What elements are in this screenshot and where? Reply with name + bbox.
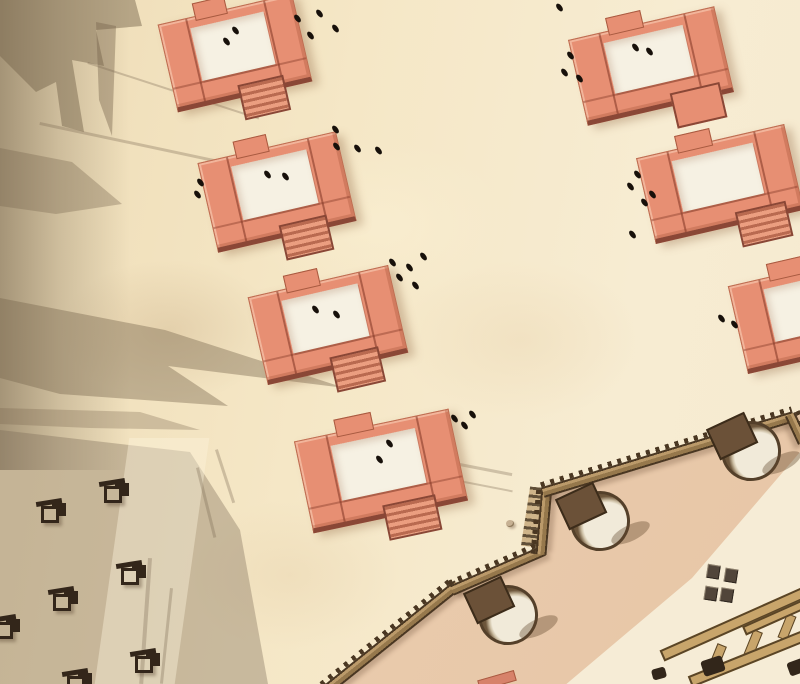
inner-courtyard — [231, 150, 318, 221]
inner-courtyard — [282, 283, 370, 353]
grate-pane — [719, 587, 734, 603]
market-stall — [48, 586, 74, 610]
aerial-city-scene — [0, 0, 800, 684]
market-building — [568, 6, 734, 125]
market-stall — [99, 478, 125, 502]
person-dot — [468, 409, 477, 419]
person-dot — [405, 262, 414, 272]
inner-courtyard — [331, 428, 427, 501]
roof-annex — [605, 10, 644, 36]
market-building — [728, 252, 800, 374]
market-stall — [116, 560, 142, 584]
roof-annex — [765, 256, 800, 282]
grate-pane — [706, 564, 721, 580]
market-stall — [36, 498, 62, 522]
roof-annex — [283, 268, 321, 293]
roof-annex — [674, 128, 714, 154]
person-dot — [626, 181, 635, 191]
entrance-steps — [669, 82, 727, 129]
person-dot — [306, 30, 315, 40]
person-dot — [315, 8, 324, 18]
grate-pane — [703, 586, 718, 602]
person-dot — [353, 143, 362, 153]
market-stall — [130, 648, 156, 672]
market-building — [248, 265, 409, 385]
person-dot — [193, 189, 202, 199]
person-dot — [395, 272, 404, 282]
entrance-steps — [734, 201, 793, 248]
pole-shadow — [215, 449, 235, 503]
inner-courtyard — [603, 25, 694, 94]
pole-shadow — [196, 467, 216, 538]
person-dot — [560, 67, 569, 77]
person-dot — [388, 257, 397, 267]
person-dot — [419, 251, 428, 261]
market-building — [197, 131, 356, 253]
person-dot — [628, 229, 637, 239]
entrance-steps — [279, 214, 335, 260]
inner-courtyard — [190, 12, 275, 81]
pebble — [506, 520, 514, 527]
entrance-steps — [237, 75, 291, 121]
person-dot — [411, 280, 420, 290]
market-stall — [0, 614, 16, 638]
person-dot — [555, 2, 564, 12]
market-building — [158, 0, 313, 112]
person-dot — [460, 420, 469, 430]
roof-annex — [191, 0, 227, 21]
inner-courtyard — [672, 143, 764, 213]
pole-shadow — [160, 588, 173, 684]
ground-stain — [180, 500, 400, 650]
grate-pane — [723, 568, 738, 584]
person-dot — [717, 313, 726, 323]
person-dot — [374, 145, 383, 155]
ground-stain — [60, 260, 280, 400]
ground-stain — [400, 260, 640, 420]
left-shadow-strip — [0, 0, 130, 470]
entrance-steps — [382, 494, 442, 540]
market-building — [636, 124, 800, 244]
roof-annex — [232, 134, 269, 159]
roof-annex — [333, 412, 374, 437]
market-building — [294, 409, 468, 534]
entrance-steps — [330, 346, 386, 392]
floor-grate — [702, 564, 738, 604]
person-dot — [331, 23, 340, 33]
market-stall — [62, 668, 88, 684]
